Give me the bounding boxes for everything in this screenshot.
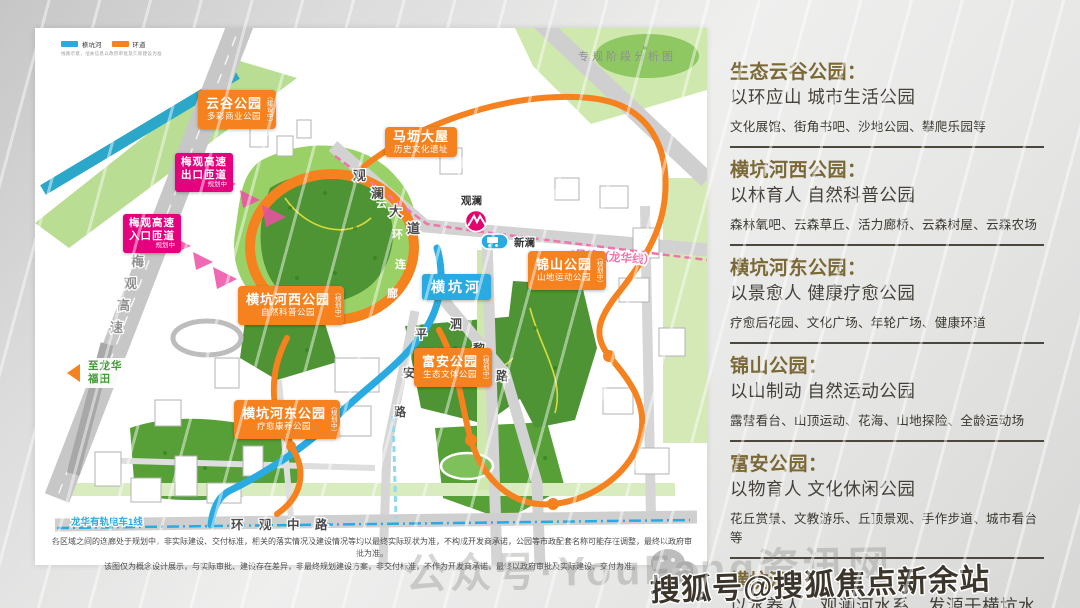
jinshan-subtitle: 山地运动公园 — [536, 272, 592, 282]
svg-text:澜: 澜 — [371, 186, 384, 201]
svg-text:路: 路 — [496, 368, 509, 383]
yungu-subtitle: 多彩商业公园 — [206, 111, 262, 121]
svg-text:观: 观 — [124, 276, 137, 291]
section-desc: 疗愈后花园、文化广场、年轮广场、健康环道 — [730, 312, 1044, 331]
disclaimer-line1: 各区域之间的连廊处于规划中，非实际建设、交付标准，相关的落实情况及建设情况等均以… — [49, 536, 695, 561]
svg-text:观: 观 — [353, 168, 366, 183]
map-legend: 横坑河 环道 线路示意，相关信息以政府审批及实际建设为准 — [61, 39, 162, 57]
east-title: 横坑河东公园 — [242, 407, 326, 421]
label-to-longhua: 至龙华 福田 — [67, 358, 129, 388]
legend-river-swatch — [61, 41, 78, 47]
tram-station-icon — [481, 234, 508, 249]
section-title: 富安公园： — [730, 454, 1044, 476]
label-hengkeng-east-park: 横坑河东公园 疗愈康养公园 （规划中） — [234, 400, 340, 439]
section-title: 横坑河西公园： — [730, 160, 1044, 182]
section-subtitle: 以物育人 文化休闲公园 — [730, 479, 1044, 499]
svg-text:路: 路 — [394, 404, 407, 419]
section-subtitle: 以山制动 自然运动公园 — [730, 381, 1044, 401]
section-title: 生态云谷公园： — [730, 62, 1044, 84]
svg-text:速: 速 — [110, 320, 123, 335]
svg-text:道: 道 — [407, 221, 420, 236]
metro-station-icon — [466, 211, 487, 232]
section-jinshan: 锦山公园： 以山制动 自然运动公园 露营看台、山顶运动、花海、山地探险、全龄运动… — [730, 356, 1044, 442]
section-desc: 森林氧吧、云森草丘、活力廊桥、云森树屋、云森农场 — [730, 214, 1044, 233]
svg-text:大: 大 — [389, 204, 402, 219]
disclaimer-line2: 该图仅为概念设计展示，与实际审批、建设存在差异，非最终规划建设方案，非交付标准，… — [49, 561, 695, 573]
to-longhua-line2: 福田 — [88, 373, 123, 386]
mali-subtitle: 历史文化遗址 — [393, 144, 449, 154]
green-strip-east — [663, 178, 707, 443]
label-hengkeng-west-park: 横坑河西公园 自然科普公园 （规划中） — [238, 286, 344, 325]
label-hengkeng-river: 横坑河 — [422, 274, 491, 300]
entry-ramp-line1: 梅观高速 — [129, 217, 175, 230]
map-panel: 云 环 连 廊 梅 观 高 速 观 澜 — [35, 28, 707, 565]
station-xinlan-label: 新澜 — [514, 236, 535, 249]
fuan-status: （规划中） — [481, 351, 488, 384]
map-canvas: 云 环 连 廊 梅 观 高 速 观 澜 — [35, 28, 707, 565]
section-hengkeng-west: 横坑河西公园： 以林育人 自然科普公园 森林氧吧、云森草丘、活力廊桥、云森树屋、… — [730, 160, 1044, 246]
legend-note: 线路示意，相关信息以政府审批及实际建设为准 — [61, 51, 162, 57]
section-yungu: 生态云谷公园： 以环应山 城市生活公园 文化展馆、街角书吧、沙地公园、攀爬乐园等 — [730, 62, 1044, 148]
legend-ring-label: 环道 — [133, 39, 146, 49]
canal-dashed — [393, 416, 396, 518]
west-title: 横坑河西公园 — [246, 293, 330, 307]
svg-text:环: 环 — [392, 228, 403, 241]
direction-arrow-icon — [67, 364, 80, 382]
section-desc: 露营看台、山顶运动、花海、山地探险、全龄运动场 — [730, 410, 1044, 429]
section-title: 横坑河东公园： — [730, 258, 1044, 280]
map-stage-tag: 专规阶段分析图 — [578, 48, 676, 64]
fuan-title: 富安公园 — [422, 355, 478, 369]
section-title: 锦山公园： — [730, 356, 1044, 378]
yungu-status: （建设中） — [265, 93, 272, 126]
west-subtitle: 自然科普公园 — [246, 307, 330, 317]
section-subtitle: 以林育人 自然科普公园 — [730, 185, 1044, 205]
svg-text:泗: 泗 — [450, 316, 462, 331]
exit-ramp-line1: 梅观高速 — [181, 156, 227, 169]
section-fuan: 富安公园： 以物育人 文化休闲公园 花丘赏景、文教游乐、丘顶景观、手作步道、城市… — [730, 454, 1044, 559]
svg-text:廊: 廊 — [387, 286, 398, 300]
fuan-subtitle: 生态文体公园 — [422, 369, 478, 379]
svg-text:梅: 梅 — [131, 254, 144, 269]
east-status: （规划中） — [329, 403, 336, 436]
section-desc: 文化展馆、街角书吧、沙地公园、攀爬乐园等 — [730, 116, 1044, 135]
label-mali-house: 马坜大屋 历史文化遗址 — [385, 127, 457, 157]
tram-line-label: 龙华有轨电车1线 — [70, 516, 143, 528]
jinshan-status: （规划中） — [595, 254, 602, 287]
road-label-huanguan: 环 观 中 路 — [231, 517, 333, 532]
label-jinshan-park: 锦山公园 山地运动公园 （规划中） — [528, 251, 606, 290]
svg-text:高: 高 — [117, 298, 130, 313]
legend-river-label: 横坑河 — [82, 39, 102, 49]
to-longhua-line1: 至龙华 — [88, 360, 123, 373]
exit-ramp-status: 规划中 — [181, 181, 227, 189]
label-entry-ramp: 梅观高速 入口匝道 规划中 — [123, 214, 181, 253]
entry-ramp-line2: 入口匝道 — [129, 230, 175, 243]
svg-text:平: 平 — [415, 327, 427, 341]
label-yungu-park: 云谷公园 多彩商业公园 （建设中） — [198, 90, 276, 129]
exit-ramp-line2: 出口匝道 — [181, 169, 227, 182]
section-desc: 花丘赏景、文教游乐、丘顶景观、手作步道、城市看台等 — [730, 508, 1044, 546]
station-guanlan-label: 观澜 — [461, 194, 482, 207]
section-subtitle: 以环应山 城市生活公园 — [730, 87, 1044, 107]
label-fuan-park: 富安公园 生态文体公园 （规划中） — [414, 348, 492, 387]
label-exit-ramp: 梅观高速 出口匝道 规划中 — [175, 153, 233, 192]
east-subtitle: 疗愈康养公园 — [242, 421, 326, 431]
section-subtitle: 以景愈人 健康疗愈公园 — [730, 283, 1044, 303]
stadium-track — [173, 321, 241, 355]
map-disclaimer: 各区域之间的连廊处于规划中，非实际建设、交付标准，相关的落实情况及建设情况等均以… — [49, 536, 695, 573]
park-descriptions-panel: 生态云谷公园： 以环应山 城市生活公园 文化展馆、街角书吧、沙地公园、攀爬乐园等… — [730, 62, 1044, 608]
svg-text:连: 连 — [395, 257, 407, 271]
jinshan-title: 锦山公园 — [536, 258, 592, 272]
mali-title: 马坜大屋 — [393, 130, 449, 144]
infographic-page: 云 环 连 廊 梅 观 高 速 观 澜 — [0, 0, 1080, 608]
entry-ramp-status: 规划中 — [129, 242, 175, 250]
section-hengkeng-east: 横坑河东公园： 以景愈人 健康疗愈公园 疗愈后花园、文化广场、年轮广场、健康环道 — [730, 258, 1044, 344]
legend-ring-swatch — [112, 41, 129, 47]
yungu-title: 云谷公园 — [206, 97, 262, 111]
west-status: （规划中） — [333, 289, 340, 322]
